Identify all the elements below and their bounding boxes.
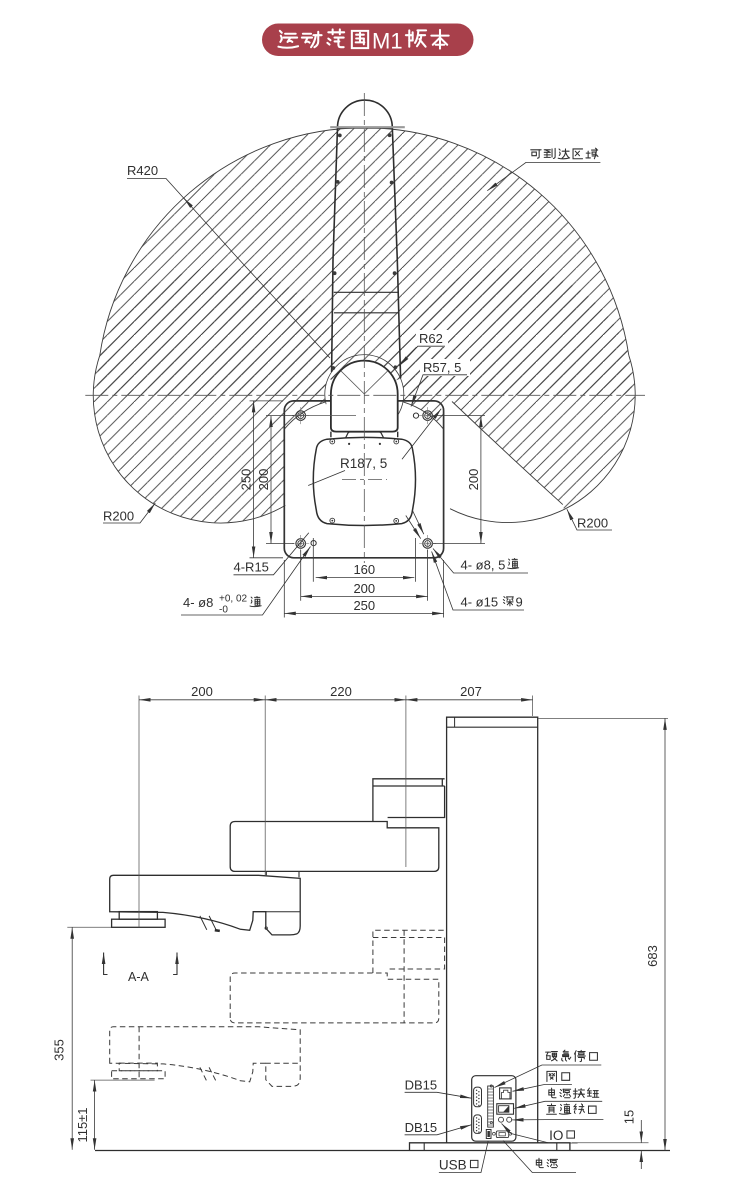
svg-text:4- ø8, 5: 4- ø8, 5 xyxy=(461,558,506,573)
svg-text:200: 200 xyxy=(256,469,271,491)
svg-text:683: 683 xyxy=(645,945,660,967)
svg-text:M1: M1 xyxy=(372,29,403,54)
svg-text:R62: R62 xyxy=(419,331,443,346)
svg-text:160: 160 xyxy=(353,562,375,577)
svg-text:R187, 5: R187, 5 xyxy=(340,456,387,471)
svg-text:4-R15: 4-R15 xyxy=(234,560,269,575)
svg-text:DB15: DB15 xyxy=(405,1120,438,1135)
svg-text:A-A: A-A xyxy=(128,970,150,984)
svg-text:15: 15 xyxy=(622,1110,637,1124)
svg-text:115±1: 115±1 xyxy=(75,1107,90,1142)
svg-text:355: 355 xyxy=(52,1039,67,1061)
svg-text:207: 207 xyxy=(460,684,482,699)
svg-text:250: 250 xyxy=(239,469,254,491)
svg-text:+0, 02: +0, 02 xyxy=(219,594,248,605)
svg-text:DB15: DB15 xyxy=(405,1078,438,1093)
svg-text:USB: USB xyxy=(439,1158,467,1173)
svg-text:200: 200 xyxy=(353,581,375,596)
svg-text:9: 9 xyxy=(516,595,523,610)
svg-text:4- ø15: 4- ø15 xyxy=(461,595,499,610)
svg-text:200: 200 xyxy=(191,684,213,699)
svg-text:R200: R200 xyxy=(103,509,134,524)
svg-text:R200: R200 xyxy=(577,516,608,531)
svg-text:250: 250 xyxy=(353,598,375,613)
svg-text:200: 200 xyxy=(466,469,481,491)
svg-text:4- ø8: 4- ø8 xyxy=(183,595,213,610)
svg-text:R57, 5: R57, 5 xyxy=(423,360,461,375)
svg-text:IO: IO xyxy=(549,1128,563,1143)
svg-text:220: 220 xyxy=(330,684,352,699)
svg-text:R420: R420 xyxy=(127,163,158,178)
svg-text:-0: -0 xyxy=(219,605,228,616)
